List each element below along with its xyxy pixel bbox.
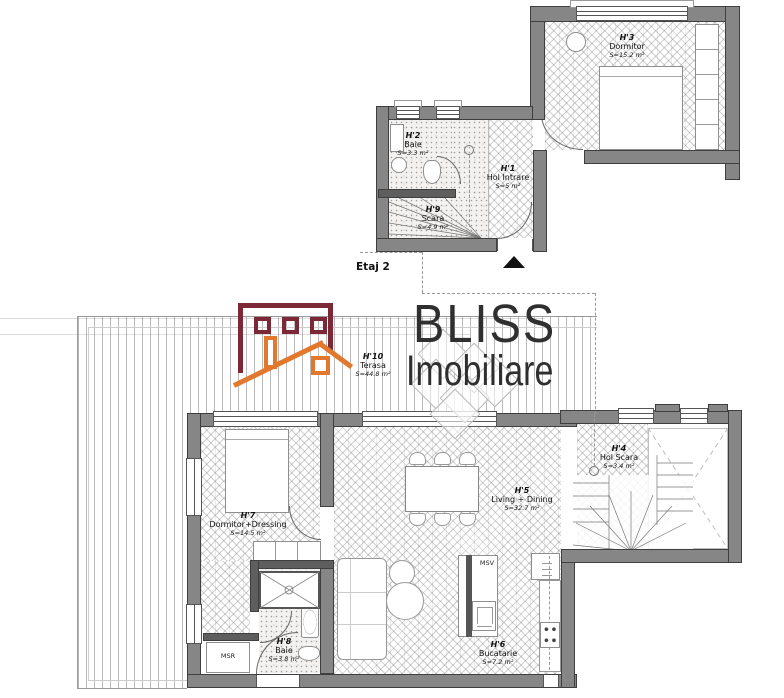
room-area: S=14.5 m² — [202, 530, 294, 538]
room-area: S=32.7 m² — [476, 505, 568, 513]
wall — [530, 6, 545, 120]
wall — [376, 106, 389, 252]
wall-partition — [250, 560, 334, 569]
logo-chimney — [264, 336, 277, 369]
room-label-h8: H'8 Baie S=3.8 m² — [251, 637, 317, 664]
window — [680, 408, 708, 424]
room-label-h4: H'4 Hol Scara S=3.4 m² — [577, 444, 661, 471]
projection-line — [422, 252, 423, 293]
wall-partition — [378, 189, 456, 198]
room-label-h6: H'6 Bucatarie S=7.2 m² — [458, 640, 538, 667]
room-code: H'1 — [474, 164, 542, 173]
room-code: H'10 — [343, 352, 403, 361]
room-area: S=3.3 m² — [380, 150, 446, 158]
room-code: H'4 — [577, 444, 661, 453]
room-area: S=4.9 m² — [398, 224, 468, 232]
bed — [599, 66, 683, 150]
wall-nub — [708, 404, 728, 412]
room-area: S=3.4 m² — [577, 463, 661, 471]
room-area: S=44.8 m² — [343, 371, 403, 379]
window — [618, 408, 654, 424]
room-label-h1: H'1 Hol Intrare S=5 m² — [474, 164, 542, 191]
room-code: H'8 — [251, 637, 317, 646]
floor-dormitor-h7 — [201, 561, 250, 633]
wall — [561, 549, 742, 563]
floor-plan-sheet: Etaj 2 BLISS Imobiliare — [0, 0, 784, 698]
wall — [320, 413, 334, 507]
brand-name-top: BLISS — [413, 296, 556, 350]
sink — [301, 606, 319, 638]
wall — [561, 549, 575, 688]
stair-guide-circle — [464, 145, 474, 155]
window — [436, 106, 460, 119]
wardrobe — [695, 24, 719, 150]
door-opening — [497, 239, 533, 251]
window — [213, 411, 318, 427]
room-label-h3: H'3 Dormitor S=15.2 m² — [582, 33, 672, 60]
dining-chair — [409, 452, 426, 465]
projection-line — [360, 252, 422, 253]
room-area: S=3.8 m² — [251, 656, 317, 664]
sink — [391, 157, 407, 173]
room-area: S=5 m² — [474, 183, 542, 191]
room-code: H'5 — [476, 486, 568, 495]
room-code: H'9 — [398, 205, 468, 214]
dining-chair — [434, 452, 451, 465]
stove — [540, 622, 560, 648]
room-label-h5: H'5 Living + Dining S=32.7 m² — [476, 486, 568, 513]
dresser — [253, 541, 321, 561]
wall — [187, 674, 577, 688]
coffee-table — [386, 582, 424, 620]
island-sink — [472, 601, 496, 631]
brand-name-bottom: Imobiliare — [406, 350, 553, 393]
wall — [584, 150, 740, 164]
terrace-deck — [77, 413, 187, 689]
room-label-h2: H'2 Baie S=3.3 m² — [380, 131, 446, 158]
dishwasher-label: MSV — [474, 559, 500, 567]
bed — [225, 429, 289, 513]
wall — [187, 413, 201, 688]
wall-nub — [655, 404, 680, 412]
room-area: S=7.2 m² — [458, 659, 538, 667]
dining-chair — [459, 452, 476, 465]
projection-line — [595, 293, 596, 414]
door-opening — [543, 675, 559, 687]
room-code: H'2 — [380, 131, 446, 140]
entrance-arrow — [503, 256, 525, 268]
window — [186, 604, 202, 644]
washing-machine-label: MSR — [206, 652, 250, 660]
stair-guide-line — [469, 155, 470, 227]
window — [186, 458, 202, 516]
fridge — [531, 553, 560, 580]
room-area: S=15.2 m² — [582, 52, 672, 60]
terrace-inner-edge — [88, 680, 187, 681]
shower — [259, 571, 320, 609]
wall — [728, 410, 742, 563]
wall-partition — [250, 560, 259, 612]
wall — [320, 560, 334, 674]
sofa — [337, 558, 387, 660]
wall — [376, 238, 497, 252]
door-opening — [256, 675, 300, 687]
counter-edge-line — [549, 556, 550, 670]
terrace-inner-edge — [88, 327, 89, 680]
room-label-h7: H'7 Dormitor+Dressing S=14.5 m² — [202, 511, 294, 538]
room-code: H'6 — [458, 640, 538, 649]
window — [576, 6, 688, 21]
logo-window — [311, 356, 330, 375]
floor-label: Etaj 2 — [356, 261, 404, 273]
window — [396, 106, 420, 119]
dining-table — [405, 466, 479, 512]
room-label-h9: H'9 Scara S=4.9 m² — [398, 205, 468, 232]
room-code: H'3 — [582, 33, 672, 42]
room-code: H'7 — [202, 511, 294, 520]
